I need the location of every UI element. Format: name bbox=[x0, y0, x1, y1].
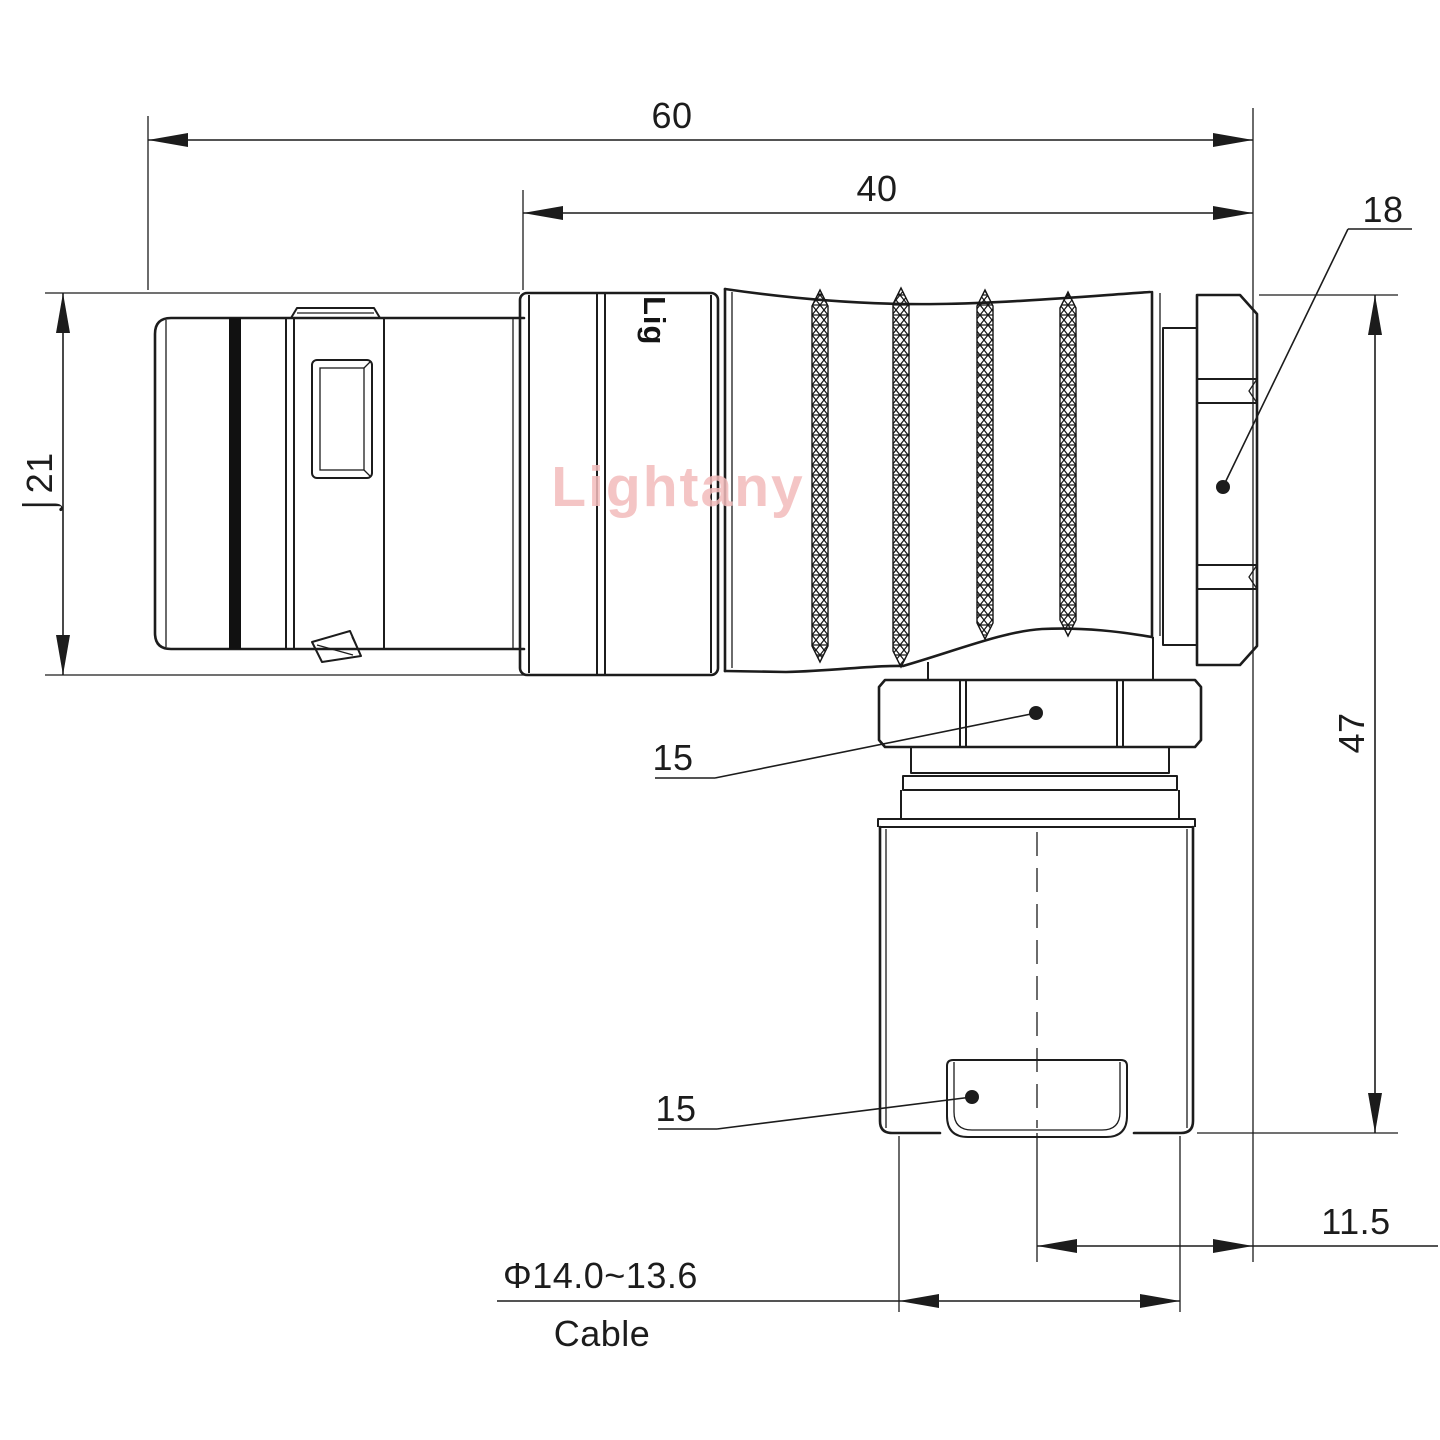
knurl-band-2 bbox=[893, 288, 909, 667]
lower-body bbox=[878, 747, 1195, 1262]
dim-overall-height-label: 47 bbox=[1331, 712, 1372, 753]
back-nut bbox=[1163, 295, 1257, 665]
dim-overall-length: 60 bbox=[148, 95, 1253, 147]
dim-cable-diameter: Φ14.0~13.6 Cable bbox=[497, 1255, 1180, 1354]
extension-lines bbox=[45, 108, 1398, 1312]
dim-cable-offset: 11.5 bbox=[1037, 1201, 1438, 1253]
dim-rear-length-label: 40 bbox=[856, 168, 897, 209]
knurl-band-4 bbox=[1060, 292, 1076, 636]
knurl-band-1 bbox=[812, 290, 828, 662]
dim-coupling-nut-label: 15 bbox=[652, 737, 693, 778]
connector-dimension-drawing: Lig bbox=[0, 0, 1440, 1440]
dim-overall-length-label: 60 bbox=[651, 95, 692, 136]
key-window bbox=[312, 360, 372, 478]
dim-rear-length: 40 bbox=[523, 168, 1253, 220]
shell-print-label: Lig bbox=[637, 296, 672, 346]
drawing-canvas: Lig bbox=[0, 0, 1440, 1440]
dim-cable-clamp: 15 bbox=[655, 1088, 979, 1129]
shell-black-band bbox=[229, 318, 241, 649]
connector-outline: Lig bbox=[155, 288, 1257, 1262]
dim-front-diameter: ⌡21 bbox=[19, 293, 70, 675]
dim-coupling-nut: 15 bbox=[652, 706, 1043, 778]
knurl-band-3 bbox=[977, 290, 993, 639]
dim-backnut: 18 bbox=[1216, 189, 1412, 494]
dim-cable-diameter-label: Φ14.0~13.6 bbox=[503, 1255, 698, 1296]
front-shell bbox=[155, 308, 524, 662]
dim-cable-offset-label: 11.5 bbox=[1321, 1201, 1390, 1242]
dim-cable-clamp-label: 15 bbox=[655, 1088, 696, 1129]
watermark-text: Lightany bbox=[551, 455, 805, 519]
dim-overall-height: 47 bbox=[1331, 295, 1382, 1133]
dim-front-diameter-label: ⌡21 bbox=[19, 452, 63, 515]
dim-cable-word-label: Cable bbox=[554, 1313, 651, 1354]
key-tab-bottom bbox=[312, 631, 361, 662]
dim-backnut-label: 18 bbox=[1362, 189, 1403, 230]
